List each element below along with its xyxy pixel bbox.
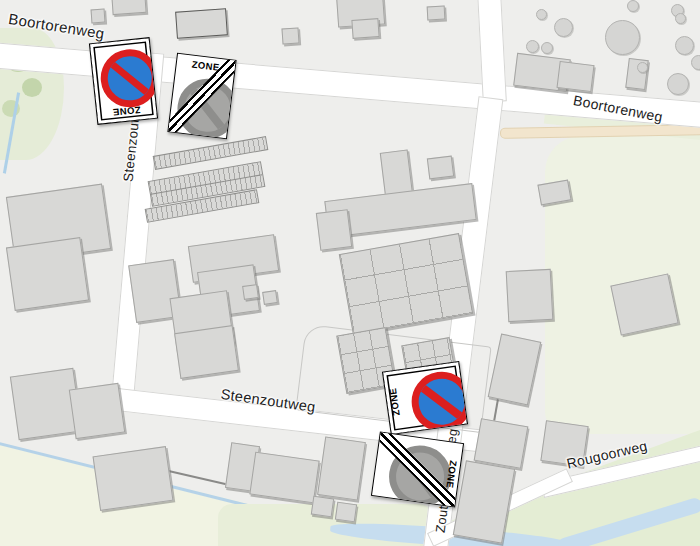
building: [174, 325, 239, 379]
building: [111, 0, 146, 15]
tree-icon: [667, 73, 689, 95]
building: [91, 9, 106, 24]
zone-text: ZONE: [387, 387, 402, 416]
no-parking-icon: [408, 368, 468, 435]
map-canvas[interactable]: Boortorenweg Boortorenweg Steenzoutweg S…: [0, 0, 700, 546]
building: [506, 269, 554, 322]
tree-icon: [675, 36, 694, 55]
building: [175, 8, 228, 38]
building: [262, 290, 278, 305]
building: [427, 6, 446, 21]
building: [93, 446, 174, 511]
zone-text: ZONE: [444, 459, 459, 488]
building: [311, 496, 334, 518]
bush-icon: [22, 78, 42, 97]
diagonal-bar-icon: [108, 59, 152, 97]
building: [317, 436, 366, 500]
building: [316, 209, 352, 251]
tree-icon: [541, 42, 553, 54]
building: [6, 237, 89, 311]
building: [249, 452, 319, 504]
tree-icon: [627, 0, 639, 12]
no-parking-zone-start-sign-top: ZONE: [89, 37, 158, 125]
tree-icon: [691, 55, 700, 70]
diagonal-bar-icon: [418, 383, 465, 421]
building: [281, 27, 299, 44]
building: [69, 383, 125, 439]
building: [242, 284, 259, 300]
building: [427, 156, 454, 180]
building: [351, 18, 379, 39]
tree-icon: [526, 40, 539, 53]
building: [488, 333, 542, 405]
building: [474, 418, 529, 469]
no-parking-zone-start-sign-bottom: ZONE: [382, 361, 468, 435]
no-parking-zone-end-sign-bottom: ZONE: [371, 431, 464, 507]
road-top-center-stub: [477, 0, 507, 103]
building: [556, 61, 594, 92]
tree-icon: [536, 9, 547, 20]
tree-icon: [605, 20, 640, 55]
tree-icon: [675, 13, 686, 24]
tree-icon: [554, 18, 573, 37]
building: [335, 502, 357, 523]
no-parking-icon: [98, 46, 158, 110]
no-parking-zone-end-sign-top: ZONE: [167, 53, 236, 140]
tree-icon: [637, 62, 648, 73]
zone-text: ZONE: [97, 103, 157, 120]
